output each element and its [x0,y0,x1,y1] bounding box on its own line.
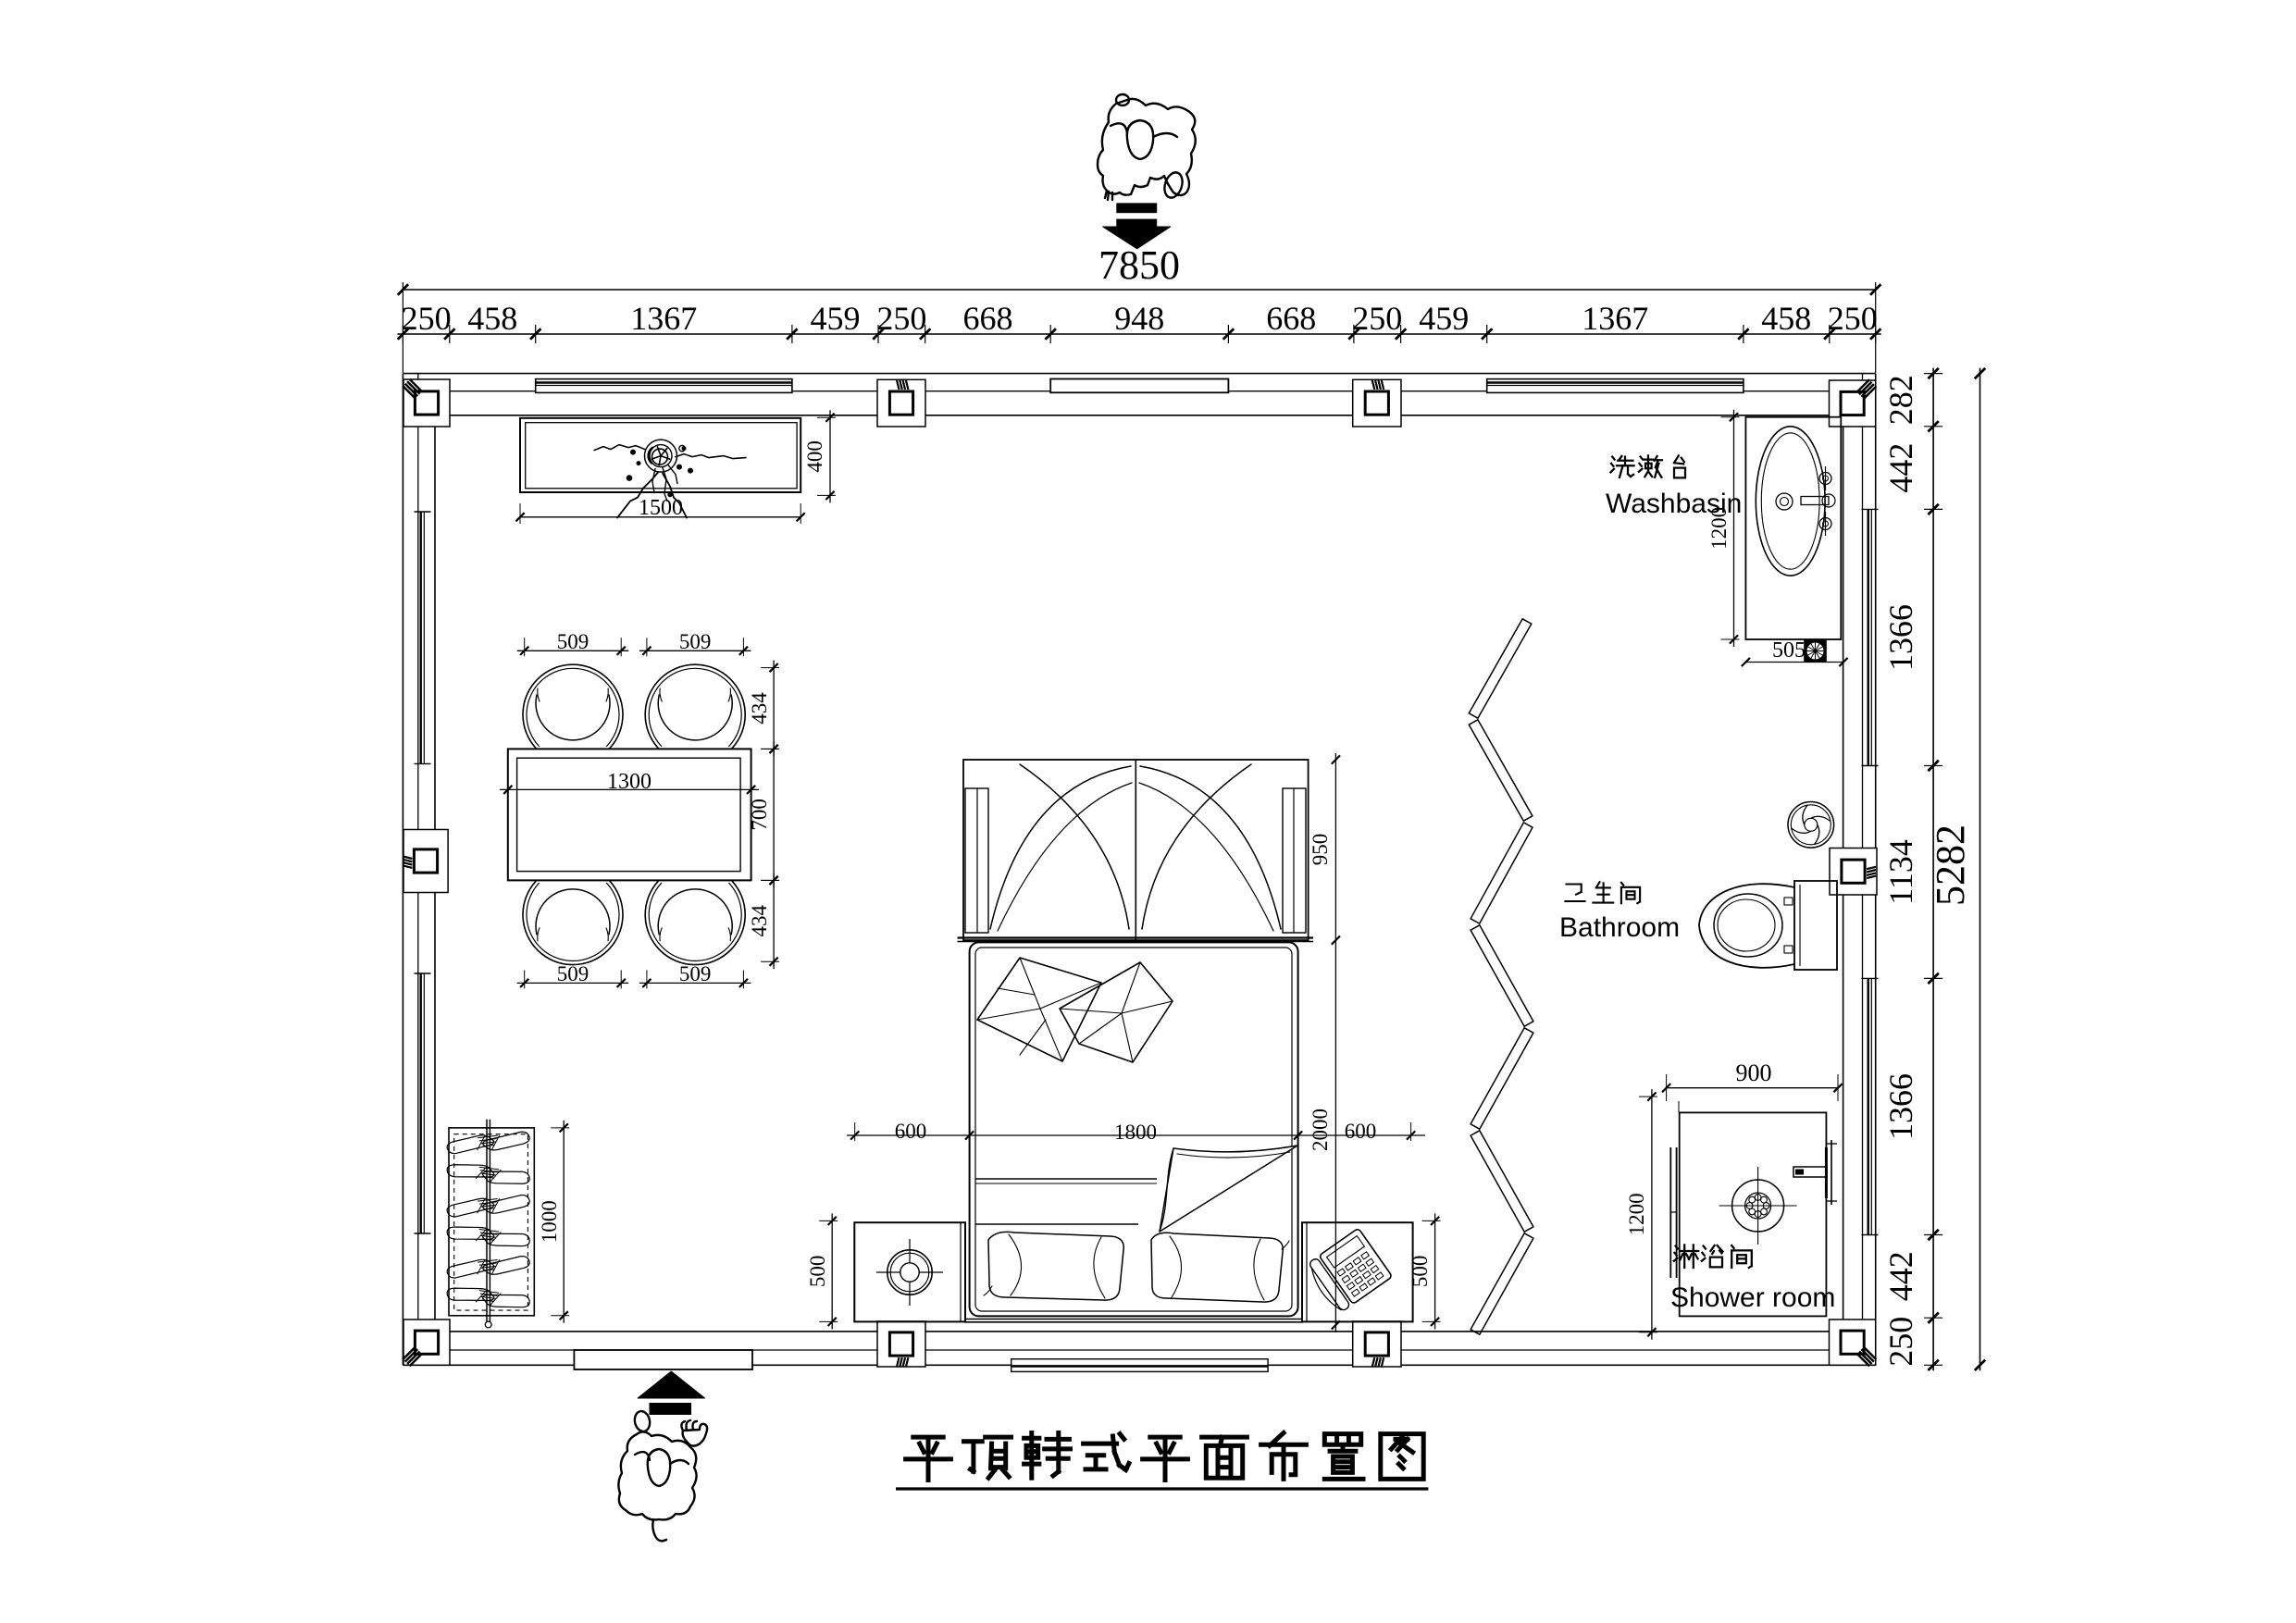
svg-text:442: 442 [1882,443,1919,493]
svg-text:1500: 1500 [639,496,683,520]
svg-text:668: 668 [963,300,1013,337]
svg-text:1367: 1367 [1582,300,1648,337]
svg-text:509: 509 [679,630,712,653]
svg-text:Shower room: Shower room [1670,1282,1835,1313]
svg-text:500: 500 [806,1256,829,1288]
svg-text:1200: 1200 [1625,1193,1648,1235]
svg-text:1367: 1367 [630,300,697,337]
svg-text:250: 250 [876,300,926,337]
svg-text:900: 900 [1736,1059,1772,1086]
svg-text:700: 700 [748,799,771,831]
svg-text:Washbasin: Washbasin [1606,489,1742,519]
svg-text:282: 282 [1882,375,1919,425]
svg-text:250: 250 [1882,1317,1919,1367]
svg-text:458: 458 [467,300,517,337]
svg-text:948: 948 [1114,300,1164,337]
svg-text:7850: 7850 [1098,242,1180,288]
svg-text:434: 434 [748,692,771,725]
svg-text:5282: 5282 [1928,824,1973,906]
svg-text:600: 600 [895,1120,927,1143]
svg-text:505: 505 [1772,638,1806,663]
svg-text:509: 509 [557,630,590,653]
svg-text:400: 400 [803,440,826,473]
svg-text:434: 434 [748,905,771,937]
svg-text:458: 458 [1761,300,1811,337]
svg-text:1366: 1366 [1882,604,1919,671]
svg-text:509: 509 [557,962,590,985]
svg-text:1300: 1300 [607,770,652,794]
svg-text:1000: 1000 [538,1200,561,1243]
svg-text:1800: 1800 [1114,1121,1157,1144]
svg-text:500: 500 [1409,1256,1432,1288]
svg-text:950: 950 [1309,834,1332,866]
svg-text:600: 600 [1345,1120,1377,1143]
svg-text:668: 668 [1266,300,1316,337]
svg-text:459: 459 [811,300,861,337]
svg-text:442: 442 [1882,1251,1919,1301]
svg-text:1134: 1134 [1882,839,1919,905]
svg-text:2000: 2000 [1309,1109,1332,1151]
svg-text:250: 250 [1352,300,1402,337]
svg-text:Bathroom: Bathroom [1559,912,1680,943]
svg-text:509: 509 [679,962,712,985]
svg-text:459: 459 [1419,300,1469,337]
svg-text:1366: 1366 [1882,1073,1919,1140]
svg-text:250: 250 [1828,300,1878,337]
svg-text:250: 250 [402,300,452,337]
